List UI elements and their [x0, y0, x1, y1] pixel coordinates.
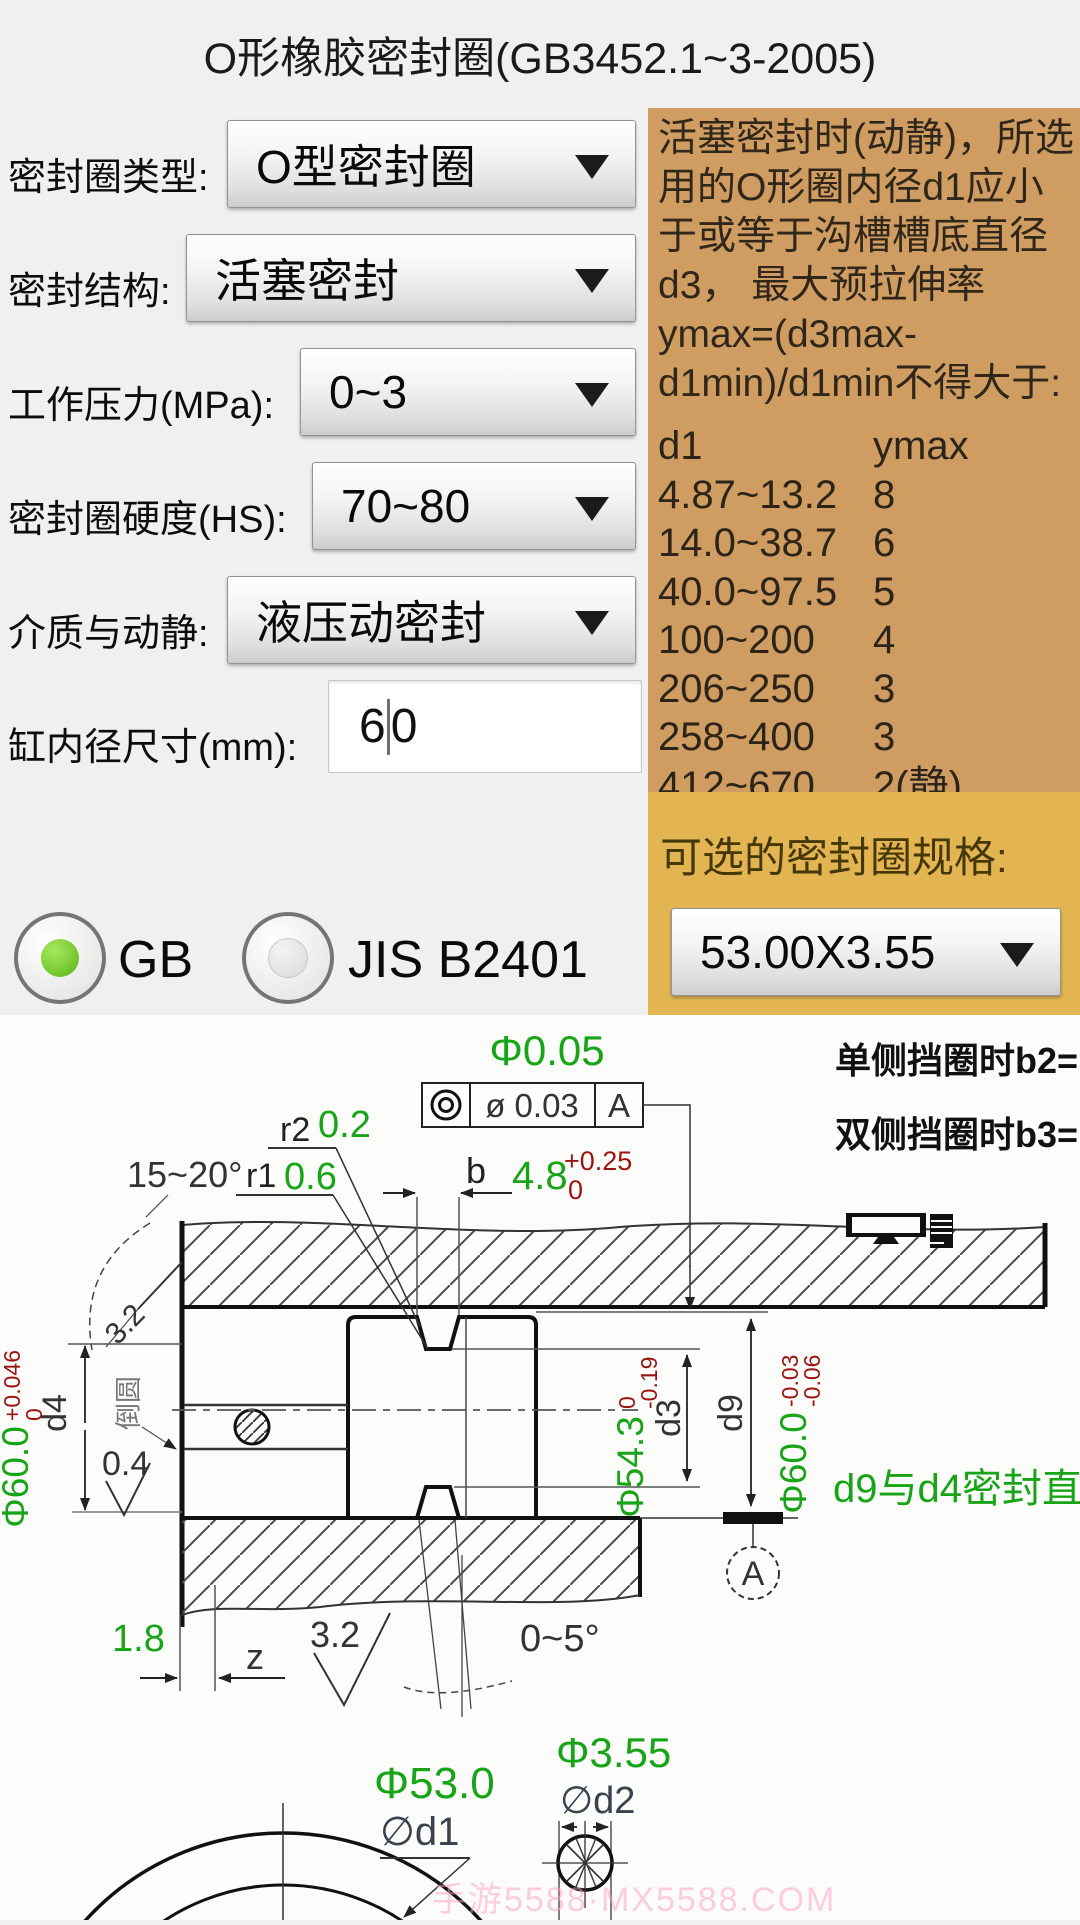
radio-selected-dot [41, 939, 79, 977]
feature-control-frame: ø 0.03 A [422, 1083, 643, 1127]
d3-dia-text: Φ54.3 [610, 1416, 651, 1518]
text-caret [387, 699, 390, 755]
piston-outline [348, 1317, 536, 1518]
d9-dia-text: Φ60.0 [773, 1412, 814, 1514]
table-row: 40.0~97.55 [658, 568, 1078, 617]
dropdown-arrow-icon [1000, 943, 1034, 967]
b-tol-upper: +0.25 [564, 1146, 632, 1176]
runout-tol-text: Φ0.05 [489, 1027, 604, 1074]
pressure-label: 工作压力(MPa): [8, 374, 274, 429]
dim-18-text: 1.8 [112, 1618, 165, 1660]
pre-stretch-table: d1ymax 4.87~13.28 14.0~38.76 40.0~97.55 … [658, 422, 1078, 792]
bore-size-input[interactable]: 6 0 [328, 680, 642, 773]
angle-range-text: 0~5° [520, 1618, 600, 1660]
page-title: O形橡胶密封圈(GB3452.1~3-2005) [0, 24, 1080, 86]
bore-size-value-post: 0 [391, 699, 418, 754]
hardness-value: 70~80 [341, 479, 470, 533]
medium-value: 液压动密封 [256, 587, 486, 653]
dropdown-arrow-icon [575, 497, 609, 521]
table-header-row: d1ymax [658, 422, 1078, 471]
dropdown-arrow-icon [575, 269, 609, 293]
round-note-text: 倒圆 [114, 1376, 144, 1430]
seal-structure-label: 密封结构: [8, 260, 171, 315]
seal-dia-note: d9与d4密封直径 [833, 1467, 1080, 1511]
z-label: z [246, 1636, 264, 1677]
medium-label: 介质与动静: [8, 602, 209, 657]
od-dia-text: Φ53.0 [374, 1759, 495, 1808]
info-paragraph: 活塞密封时(动静)，所选用的O形圈内径d1应小于或等于沟槽槽底直径d3， 最大预… [648, 108, 1080, 408]
radio-jis-label: JIS B2401 [348, 930, 588, 990]
hardness-select[interactable]: 70~80 [312, 462, 636, 550]
oring-cross-section [235, 1410, 269, 1444]
cs-label-text: ∅d2 [560, 1780, 635, 1822]
chamfer-angle-text: 15~20° [127, 1154, 243, 1195]
r1-label: r1 [246, 1157, 276, 1195]
table-row: 14.0~38.76 [658, 519, 1078, 568]
radio-jis[interactable] [242, 912, 334, 1004]
b-value: 4.8 [512, 1154, 568, 1198]
radio-unselected-dot [268, 938, 308, 978]
dropdown-arrow-icon [575, 611, 609, 635]
table-row: 412~6702(静) [658, 762, 1078, 793]
spec-label: 可选的密封圈规格: [660, 824, 1008, 885]
medium-select[interactable]: 液压动密封 [227, 576, 636, 664]
seal-structure-select[interactable]: 活塞密封 [186, 234, 636, 322]
pressure-select[interactable]: 0~3 [300, 348, 636, 436]
fcf-datum-text: A [608, 1087, 630, 1124]
table-row: 206~2503 [658, 665, 1078, 714]
table-row: 258~4003 [658, 713, 1078, 762]
bore-size-value-pre: 6 [359, 699, 386, 754]
single-backup-note: 单侧挡圈时b2= [835, 1040, 1078, 1081]
r2-value: 0.2 [318, 1104, 371, 1146]
seal-structure-value: 活塞密封 [215, 245, 399, 311]
spec-select[interactable]: 53.00X3.55 [671, 908, 1061, 996]
seal-type-value: O型密封圈 [256, 131, 476, 197]
b-label: b [466, 1150, 486, 1191]
roughness-chamfer-text: 3.2 [99, 1298, 152, 1351]
table-row: 4.87~13.28 [658, 471, 1078, 520]
watermark-text: 手游5588·MX5588.COM [432, 1881, 836, 1919]
seal-type-select[interactable]: O型密封圈 [227, 120, 636, 208]
d9-label: d9 [712, 1394, 750, 1432]
radio-gb-label: GB [118, 930, 193, 990]
r1-value: 0.6 [284, 1156, 337, 1198]
d3-label: d3 [650, 1399, 688, 1437]
double-backup-note: 双侧挡圈时b3= [835, 1114, 1078, 1155]
info-panel: 活塞密封时(动静)，所选用的O形圈内径d1应小于或等于沟槽槽底直径d3， 最大预… [648, 108, 1080, 792]
d9-tol-lower: -0.06 [799, 1355, 825, 1407]
cs-dia-text: Φ3.55 [556, 1729, 671, 1776]
d4-label: d4 [36, 1394, 74, 1432]
seal-type-label: 密封圈类型: [8, 146, 209, 201]
datum-label-text: A [742, 1555, 765, 1593]
radio-gb[interactable] [14, 912, 106, 1004]
roughness-32-text: 3.2 [310, 1614, 360, 1655]
od-label-text: ∅d1 [380, 1810, 459, 1854]
d4-dia-text: Φ60.0 [0, 1426, 36, 1528]
technical-drawing: Φ0.05 ø 0.03 A r2 0.2 r1 0.6 15~20° 3.2 … [0, 1015, 1080, 1920]
dropdown-arrow-icon [575, 155, 609, 179]
table-row: 100~2004 [658, 616, 1078, 665]
bore-size-label: 缸内径尺寸(mm): [8, 716, 297, 771]
pressure-value: 0~3 [329, 365, 407, 419]
b-tol-lower: 0 [568, 1175, 583, 1205]
spec-value: 53.00X3.55 [700, 925, 935, 979]
hardness-label: 密封圈硬度(HS): [8, 488, 287, 543]
spec-panel: 可选的密封圈规格: 53.00X3.55 [648, 792, 1080, 1015]
groove-drawing-svg: Φ0.05 ø 0.03 A r2 0.2 r1 0.6 15~20° 3.2 … [0, 1015, 1080, 1920]
fcf-value-text: ø 0.03 [485, 1087, 579, 1124]
datum-target-bar [723, 1512, 783, 1524]
r2-label: r2 [280, 1111, 310, 1149]
dropdown-arrow-icon [575, 383, 609, 407]
